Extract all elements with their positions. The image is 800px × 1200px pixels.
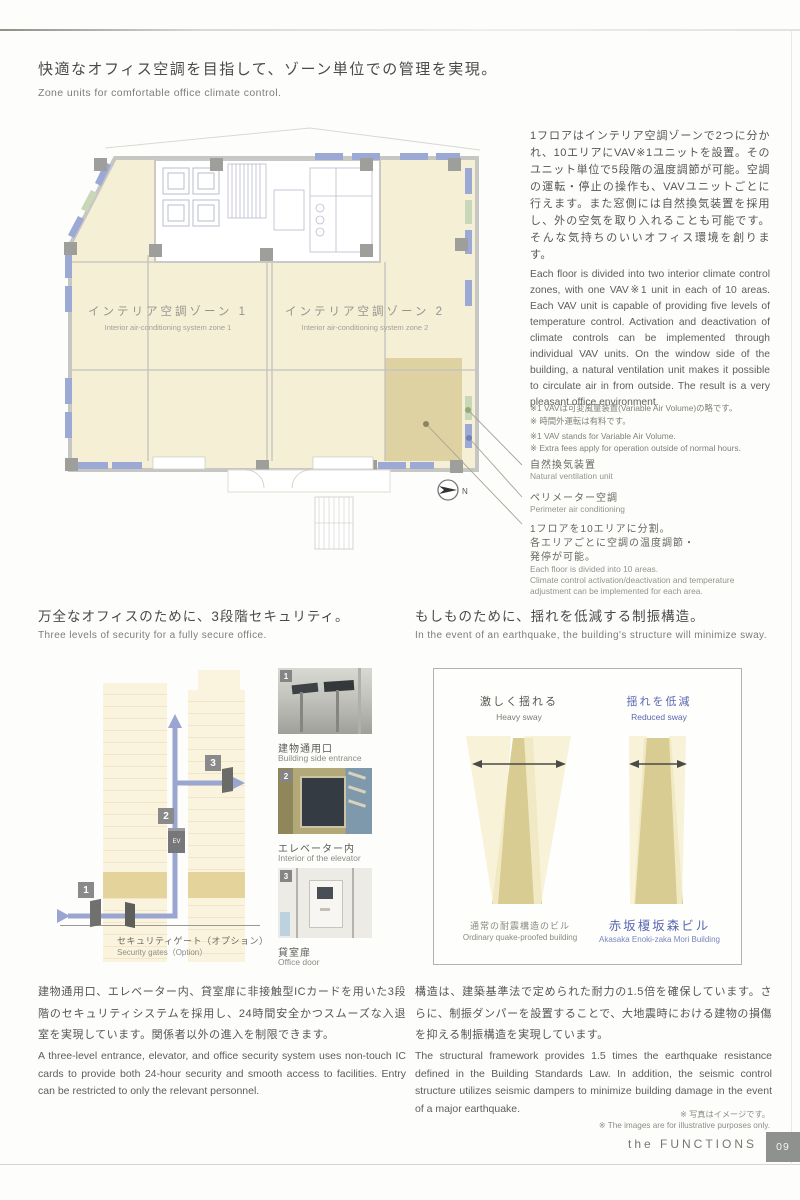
photo-badge-2: 2 bbox=[280, 770, 292, 782]
zone2-label-en: Interior air-conditioning system zone 2 bbox=[302, 323, 429, 332]
annotation-natural-ventilation-en: Natural ventilation unit bbox=[530, 471, 613, 481]
handrail bbox=[348, 771, 366, 779]
annotation-10areas-jp-3: 発停が可能。 bbox=[530, 548, 596, 563]
gate-icon bbox=[90, 899, 101, 927]
up-arrow-icon bbox=[168, 714, 182, 728]
gate-post bbox=[300, 692, 303, 732]
mori-building-caption-en: Akasaka Enoki-zaka Mori Building bbox=[592, 935, 727, 944]
climate-note-jp-2: ※ 時間外運転は有料です。 bbox=[530, 415, 772, 428]
right-arrow-icon bbox=[231, 776, 245, 790]
security-step-badge-2: 2 bbox=[158, 808, 174, 824]
climate-heading-jp: 快適なオフィス空調を目指して、ゾーン単位での管理を実現。 bbox=[38, 58, 498, 79]
mori-building-caption-jp: 赤坂榎坂森ビル bbox=[592, 915, 727, 934]
seismic-heading-jp: もしものために、揺れを低減する制振構造。 bbox=[415, 605, 705, 625]
compass-icon: N bbox=[438, 480, 468, 500]
climate-heading-en: Zone units for comfortable office climat… bbox=[38, 87, 281, 99]
security-diagram: EV 1 2 3 セキュリティゲート（オプション） Security gates… bbox=[55, 660, 285, 970]
photo-caption-3-en: Office door bbox=[278, 957, 319, 967]
ordinary-building-caption-jp: 通常の耐震構造のビル bbox=[446, 919, 594, 932]
seismic-body-jp: 構造は、建築基準法で定められた耐力の1.5倍を確保しています。さらに、制振ダンパ… bbox=[415, 982, 772, 1047]
door-frame-line bbox=[296, 868, 298, 938]
compass-label: N bbox=[462, 487, 468, 496]
photo-building-side-entrance bbox=[278, 668, 372, 734]
security-step-badge-1: 1 bbox=[78, 882, 94, 898]
security-step-badge-3: 3 bbox=[205, 755, 221, 771]
brochure-page: 快適なオフィス空調を目指して、ゾーン単位での管理を実現。 Zone units … bbox=[0, 0, 800, 1200]
photo-office-door bbox=[278, 868, 372, 938]
annotation-10areas-en-2: Climate control activation/deactivation … bbox=[530, 575, 734, 585]
climate-body-en: Each floor is divided into two interior … bbox=[530, 267, 770, 411]
entry-arrow-icon bbox=[57, 909, 70, 923]
annotation-10areas-en-3: adjustment can be implemented for each a… bbox=[530, 586, 703, 596]
handrail bbox=[348, 799, 366, 807]
photo-elevator-interior bbox=[278, 768, 372, 834]
photo-badge-1: 1 bbox=[280, 670, 292, 682]
sway-diagram: 激しく揺れる Heavy sway 揺れを低減 Reduced sway 通常の… bbox=[433, 668, 742, 965]
footer-page-number: 09 bbox=[766, 1132, 800, 1162]
reduced-sway-title-en: Reduced sway bbox=[594, 712, 724, 722]
annotation-10areas-en-1: Each floor is divided into 10 areas. bbox=[530, 564, 658, 574]
zone-10areas-highlight bbox=[385, 358, 462, 461]
photo-badge-3: 3 bbox=[280, 870, 292, 882]
photo-disclaimer-en: ※ The images are for illustrative purpos… bbox=[470, 1120, 770, 1130]
setback-line bbox=[105, 128, 480, 150]
handrail bbox=[348, 785, 366, 793]
security-heading-jp: 万全なオフィスのために、3段階セキュリティ。 bbox=[38, 605, 350, 625]
glass-mullion bbox=[358, 668, 361, 734]
turnstile-icon bbox=[324, 680, 355, 692]
annotation-10areas-jp-2: 各エリアごとに空調の温度調節・ bbox=[530, 534, 695, 549]
heavy-sway-title-en: Heavy sway bbox=[459, 712, 579, 722]
zone2-label-jp: インテリア空調ゾーン 2 bbox=[285, 304, 445, 318]
photo-disclaimer-jp: ※ 写真はイメージです。 bbox=[470, 1108, 770, 1120]
gate-icon bbox=[125, 902, 135, 928]
annotation-10areas-jp-1: 1フロアを10エリアに分割。 bbox=[530, 520, 671, 535]
photo-caption-2-en: Interior of the elevator bbox=[278, 853, 361, 863]
elevator-icon: EV bbox=[168, 828, 185, 853]
annotation-perimeter-en: Perimeter air conditioning bbox=[530, 504, 625, 514]
photo-caption-1-en: Building side entrance bbox=[278, 753, 362, 763]
ordinary-building-caption-en: Ordinary quake-proofed building bbox=[446, 933, 594, 942]
reduced-sway-title-jp: 揺れを低減 bbox=[594, 693, 724, 709]
water-cooler bbox=[280, 912, 290, 936]
footer-brand: the FUNCTIONS bbox=[560, 1137, 757, 1151]
seismic-heading-en: In the event of an earthquake, the build… bbox=[415, 630, 767, 641]
zone1-label-jp: インテリア空調ゾーン 1 bbox=[88, 304, 248, 318]
gate-caption-jp: セキュリティゲート（オプション） bbox=[117, 934, 268, 947]
page-bottom-edge bbox=[0, 1164, 800, 1165]
zone1-label-en: Interior air-conditioning system zone 1 bbox=[105, 323, 232, 332]
turnstile-icon bbox=[292, 683, 319, 695]
door-frame-line bbox=[352, 868, 354, 938]
climate-note-en-2: ※ Extra fees apply for operation outside… bbox=[530, 442, 772, 455]
security-heading-en: Three levels of security for a fully sec… bbox=[38, 630, 267, 641]
elevator-panel bbox=[300, 776, 346, 828]
security-body-en: A three-level entrance, elevator, and of… bbox=[38, 1048, 406, 1101]
page-right-edge bbox=[791, 30, 792, 1165]
page-top-edge bbox=[0, 29, 800, 31]
security-body-jp: 建物通用口、エレベーター内、貸室扉に非接触型ICカードを用いた3段階のセキュリテ… bbox=[38, 982, 406, 1047]
annotation-perimeter-jp: ペリメーター空調 bbox=[530, 489, 618, 504]
card-reader-button bbox=[320, 908, 330, 911]
heavy-sway-title-jp: 激しく揺れる bbox=[459, 693, 579, 709]
door-icon bbox=[222, 767, 233, 793]
gate-caption-en: Security gates（Option） bbox=[117, 947, 207, 958]
annotation-natural-ventilation-jp: 自然換気装置 bbox=[530, 456, 596, 471]
climate-note-jp-1: ※1 VAVは可変風量装置(Variable Air Volume)の略です。 bbox=[530, 402, 772, 415]
floor-plan: N インテリア空調ゾーン 1 Interior air-conditioning… bbox=[60, 120, 540, 560]
gate-post bbox=[336, 690, 339, 732]
card-reader-screen bbox=[317, 887, 333, 899]
climate-body-jp: 1フロアはインテリア空調ゾーンで2つに分かれ、10エリアにVAV※1ユニットを設… bbox=[530, 128, 770, 264]
